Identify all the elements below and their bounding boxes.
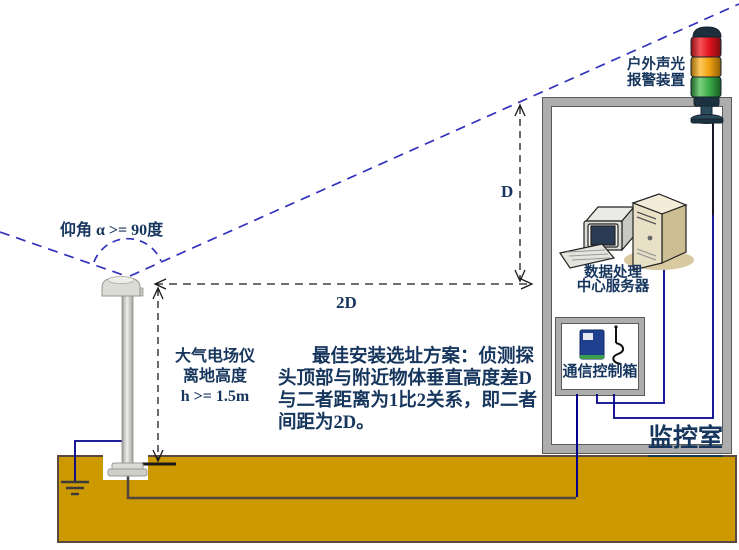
alarm-label-line1: 户外声光 <box>623 57 689 73</box>
elevation-angle-label: 仰角 α >= 90度 <box>60 216 163 240</box>
cables <box>75 122 713 498</box>
field-mill-sensor-on-pole-icon <box>102 277 147 477</box>
note-line1: 最佳安装选址方案：侦测探 <box>278 346 560 368</box>
note-line2: 头顶部与附近物体垂直高度差D <box>278 368 560 390</box>
server-label-line1: 数据处理 <box>568 266 658 280</box>
alarm-device-label: 户外声光 报警装置 <box>623 57 689 89</box>
server-label: 数据处理 中心服务器 <box>568 266 658 294</box>
dimension-2d-label: 2D <box>336 293 357 313</box>
dimension-d-label: D <box>501 182 513 202</box>
sensor-height-line1: 大气电场仪 <box>168 347 262 367</box>
note-line4: 间距为2D。 <box>278 412 560 434</box>
alarm-label-line2: 报警装置 <box>623 73 689 89</box>
monitor-room-label: 监控室 <box>648 418 723 457</box>
sensor-height-line2: 离地高度 <box>168 367 262 387</box>
earth-ground-symbol-icon <box>61 482 89 494</box>
sensor-height-label: 大气电场仪 离地高度 h >= 1.5m <box>168 347 262 407</box>
computer-and-server-icon <box>560 194 694 270</box>
gsm-modem-antenna-icon <box>580 325 623 364</box>
installation-diagram: 仰角 α >= 90度 D 2D 大气电场仪 离地高度 h >= 1.5m 最佳… <box>0 0 739 550</box>
note-line3: 与二者距离为1比2关系，即二者 <box>278 390 560 412</box>
installation-note: 最佳安装选址方案：侦测探 头顶部与附近物体垂直高度差D 与二者距离为1比2关系，… <box>278 346 560 434</box>
server-label-line2: 中心服务器 <box>568 280 658 294</box>
comm-box-label: 通信控制箱 <box>560 360 640 381</box>
signal-tower-light-icon <box>691 27 723 124</box>
sensor-height-line3: h >= 1.5m <box>168 387 262 407</box>
